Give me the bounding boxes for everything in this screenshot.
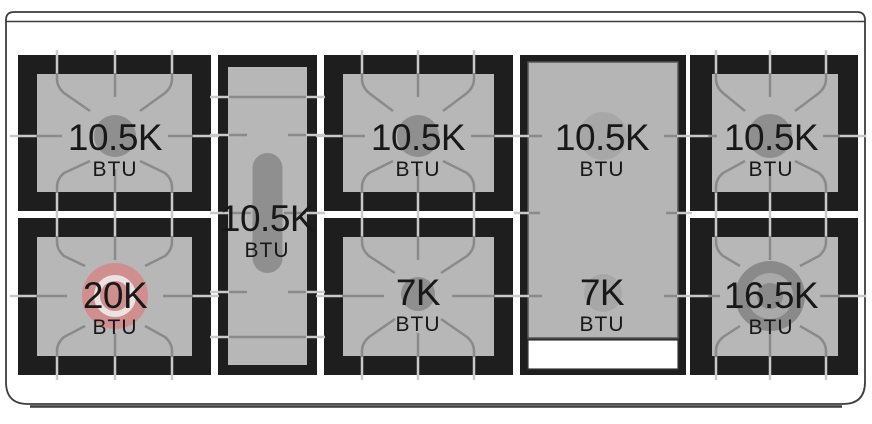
btu-value: 10.5K xyxy=(68,119,162,156)
label-right-rear: 10.5K BTU xyxy=(724,119,818,180)
griddle-front-panel xyxy=(528,340,678,369)
btu-value: 7K xyxy=(580,274,625,311)
btu-unit: BTU xyxy=(724,159,818,180)
btu-unit: BTU xyxy=(220,240,314,261)
btu-value: 10.5K xyxy=(724,119,818,156)
label-center: 10.5K BTU xyxy=(220,200,314,261)
btu-unit: BTU xyxy=(83,317,147,338)
btu-unit: BTU xyxy=(396,314,441,335)
btu-value: 10.5K xyxy=(555,119,649,156)
label-mid-front: 7K BTU xyxy=(396,274,441,335)
btu-unit: BTU xyxy=(68,159,162,180)
btu-unit: BTU xyxy=(724,317,818,338)
btu-value: 20K xyxy=(83,277,147,314)
btu-unit: BTU xyxy=(371,159,465,180)
label-griddle-front: 7K BTU xyxy=(580,274,625,335)
label-left-rear: 10.5K BTU xyxy=(68,119,162,180)
btu-value: 10.5K xyxy=(371,119,465,156)
btu-unit: BTU xyxy=(580,314,625,335)
range-cooktop-diagram: 10.5K BTU 20K BTU 10.5K BTU 10.5K BTU 7K… xyxy=(0,0,872,424)
label-griddle-rear: 10.5K BTU xyxy=(555,119,649,180)
label-mid-rear: 10.5K BTU xyxy=(371,119,465,180)
btu-value: 16.5K xyxy=(724,277,818,314)
cooktop-graphic xyxy=(0,0,872,424)
btu-unit: BTU xyxy=(555,159,649,180)
btu-value: 10.5K xyxy=(220,200,314,237)
label-left-front: 20K BTU xyxy=(83,277,147,338)
label-right-front: 16.5K BTU xyxy=(724,277,818,338)
btu-value: 7K xyxy=(396,274,441,311)
